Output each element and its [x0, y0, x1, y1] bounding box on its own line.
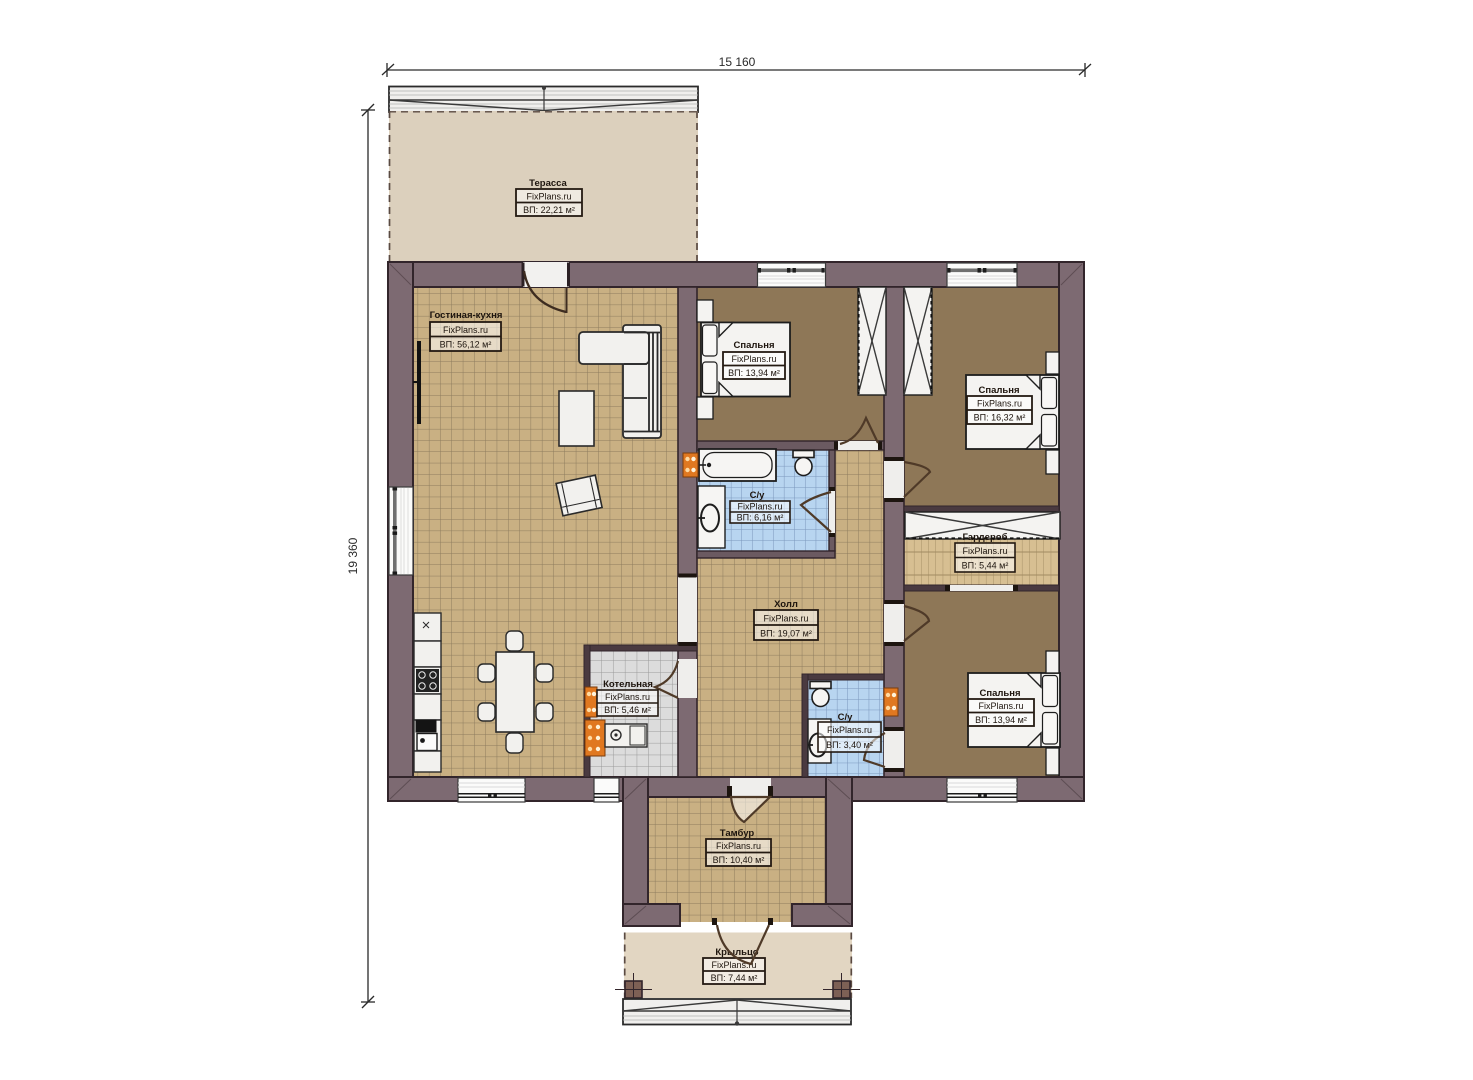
svg-text:Котельная: Котельная	[603, 679, 653, 690]
svg-text:Холл: Холл	[774, 599, 798, 610]
svg-text:ВП: 22,21 м²: ВП: 22,21 м²	[523, 205, 575, 215]
svg-text:Спальня: Спальня	[978, 385, 1019, 396]
svg-text:Тамбур: Тамбур	[720, 828, 755, 839]
svg-text:FixPlans.ru: FixPlans.ru	[977, 399, 1022, 409]
svg-text:ВП: 56,12 м²: ВП: 56,12 м²	[440, 340, 492, 350]
svg-text:FixPlans.ru: FixPlans.ru	[711, 960, 756, 970]
svg-text:Терасса: Терасса	[529, 178, 567, 189]
svg-text:FixPlans.ru: FixPlans.ru	[763, 614, 808, 624]
svg-text:FixPlans.ru: FixPlans.ru	[526, 192, 571, 202]
svg-text:FixPlans.ru: FixPlans.ru	[962, 546, 1007, 556]
svg-text:ВП: 3,40 м²: ВП: 3,40 м²	[826, 740, 873, 750]
svg-text:ВП: 7,44 м²: ВП: 7,44 м²	[711, 973, 758, 983]
svg-text:Гостиная-кухня: Гостиная-кухня	[430, 310, 503, 321]
svg-text:Спальня: Спальня	[979, 688, 1020, 699]
svg-text:Спальня: Спальня	[733, 340, 774, 351]
svg-text:FixPlans.ru: FixPlans.ru	[605, 692, 650, 702]
svg-text:ВП: 13,94 м²: ВП: 13,94 м²	[975, 715, 1027, 725]
svg-text:FixPlans.ru: FixPlans.ru	[443, 325, 488, 335]
svg-text:FixPlans.ru: FixPlans.ru	[731, 354, 776, 364]
svg-text:ВП: 16,32 м²: ВП: 16,32 м²	[974, 413, 1026, 423]
svg-text:ВП: 5,44 м²: ВП: 5,44 м²	[962, 561, 1009, 571]
svg-text:19 360: 19 360	[346, 537, 360, 574]
svg-text:ВП: 10,40 м²: ВП: 10,40 м²	[713, 855, 765, 865]
svg-text:ВП: 13,94 м²: ВП: 13,94 м²	[728, 368, 780, 378]
svg-text:Крыльцо: Крыльцо	[715, 947, 758, 958]
svg-text:ВП: 19,07 м²: ВП: 19,07 м²	[760, 629, 812, 639]
svg-text:15 160: 15 160	[719, 55, 756, 69]
svg-text:FixPlans.ru: FixPlans.ru	[737, 502, 782, 512]
svg-text:FixPlans.ru: FixPlans.ru	[978, 701, 1023, 711]
svg-text:С/у: С/у	[750, 490, 766, 501]
svg-text:Гардероб: Гардероб	[963, 532, 1008, 543]
svg-text:ВП: 5,46 м²: ВП: 5,46 м²	[604, 705, 651, 715]
svg-text:FixPlans.ru: FixPlans.ru	[827, 725, 872, 735]
svg-text:ВП: 6,16 м²: ВП: 6,16 м²	[737, 513, 784, 523]
svg-text:FixPlans.ru: FixPlans.ru	[716, 841, 761, 851]
